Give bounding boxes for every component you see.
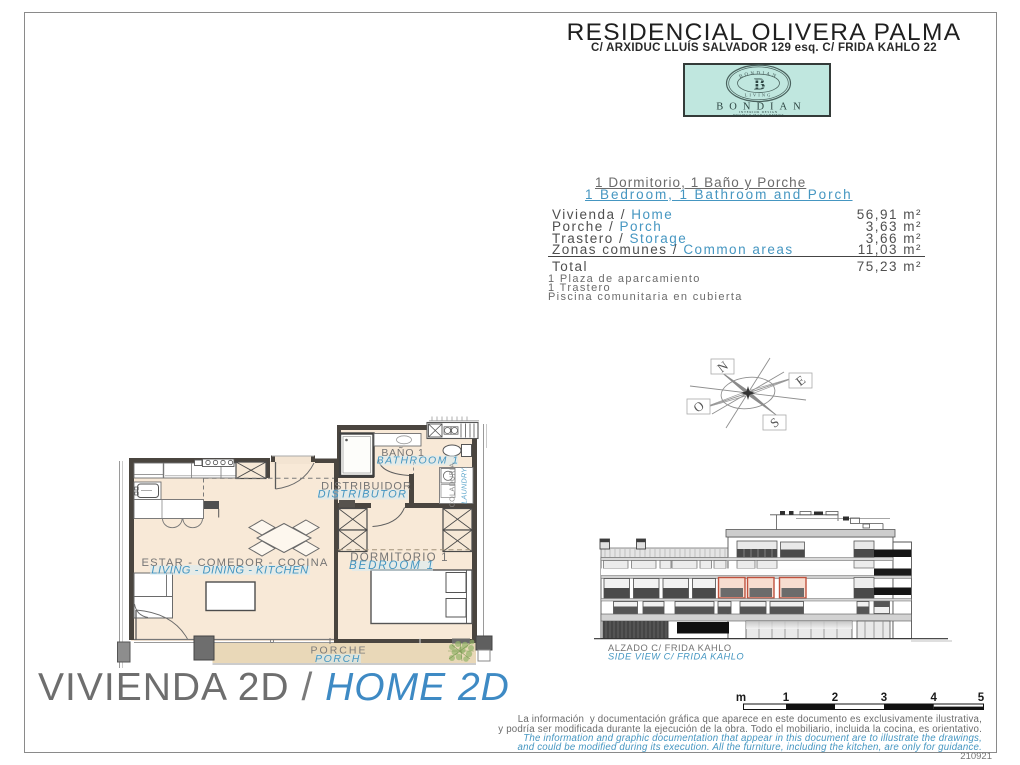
svg-text:BEDROOM 1: BEDROOM 1 bbox=[349, 560, 435, 572]
svg-text:5: 5 bbox=[978, 692, 985, 704]
svg-text:COLADURIA: COLADURIA bbox=[448, 463, 457, 508]
svg-text:2: 2 bbox=[832, 692, 838, 704]
svg-text:LIVING - DINING - KITCHEN: LIVING - DINING - KITCHEN bbox=[151, 565, 309, 577]
svg-text:LAUNDRY.: LAUNDRY. bbox=[459, 466, 468, 504]
svg-text:1: 1 bbox=[783, 692, 790, 704]
svg-text:m: m bbox=[736, 692, 746, 704]
svg-text:SIDE VIEW C/ FRIDA KAHLO: SIDE VIEW C/ FRIDA KAHLO bbox=[608, 652, 744, 662]
svg-text:3: 3 bbox=[881, 692, 887, 704]
svg-text:4: 4 bbox=[930, 692, 937, 704]
svg-text:PORCH: PORCH bbox=[315, 653, 361, 665]
svg-text:DISTRIBUTOR: DISTRIBUTOR bbox=[318, 489, 408, 501]
